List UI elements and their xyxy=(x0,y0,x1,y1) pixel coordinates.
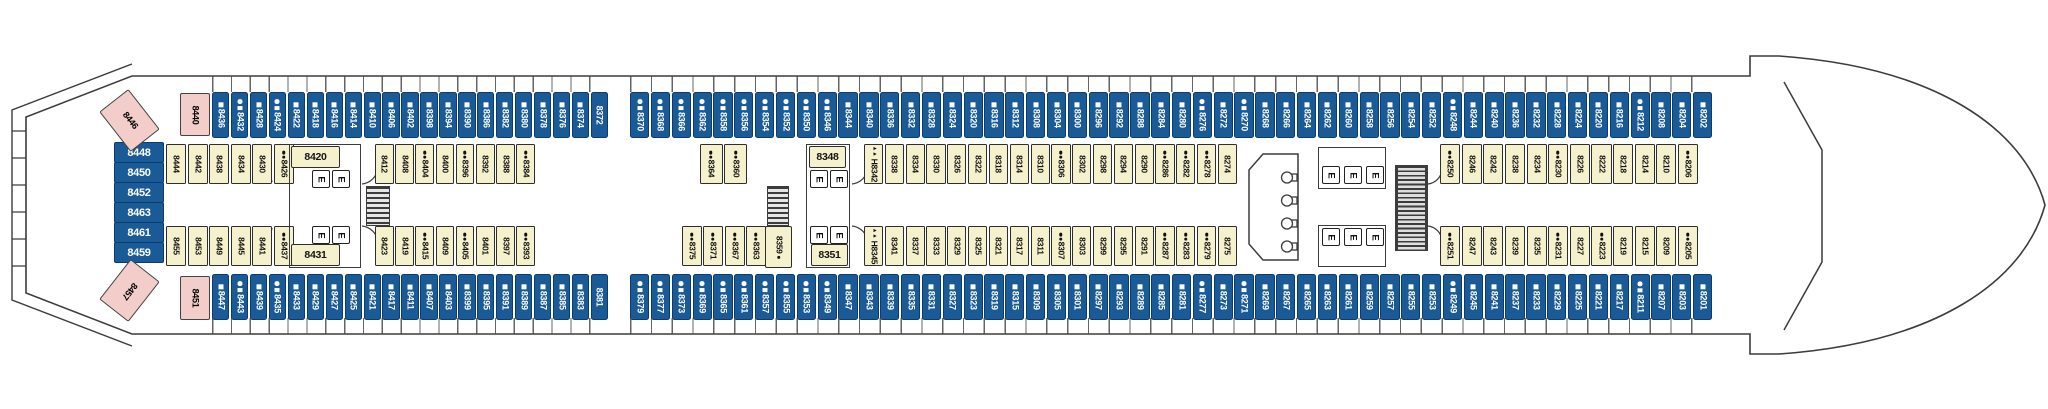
sofa-bed-icon xyxy=(1221,102,1226,107)
cabin-8233: 8233 xyxy=(1526,274,1545,320)
sofa-bed-icon xyxy=(1054,284,1059,289)
cabin-8260: 8260 xyxy=(1339,92,1358,138)
cabin-number: 8214 xyxy=(1641,155,1650,173)
sofa-bed-icon xyxy=(1158,102,1163,107)
cabin-8281: 8281 xyxy=(1172,274,1191,320)
cabin-number: 8389 xyxy=(519,284,528,309)
sofa-bed-icon xyxy=(256,284,261,289)
accessible-triangles-icon: ▲▲ xyxy=(871,146,877,157)
cabin-8317: 8317 xyxy=(1010,226,1029,266)
cabin-8296: 8296 xyxy=(1089,92,1108,138)
cabin-8402: 8402 xyxy=(401,92,418,138)
sofa-bed-icon xyxy=(1284,102,1289,107)
sofa-bed-icon xyxy=(700,288,705,293)
sofa-bed-icon xyxy=(465,284,470,289)
balcony-divider-strip-0 xyxy=(212,76,608,92)
upper-berth-dot-icon xyxy=(1205,233,1209,237)
cabin-number: 8303 xyxy=(1077,237,1086,255)
sofa-bed-icon xyxy=(465,102,470,107)
cabin-number: 8355 xyxy=(781,281,790,313)
cabin-number: 8367 xyxy=(730,233,739,260)
upper-berth-dot-icon xyxy=(690,237,694,241)
cabin-8315: 8315 xyxy=(1005,274,1024,320)
cabin-8278: 8278 xyxy=(1197,144,1216,184)
cabin-8428: 8428 xyxy=(250,92,267,138)
cabin-8438: 8438 xyxy=(209,144,229,184)
cabin-8319: 8319 xyxy=(984,274,1003,320)
cabin-8201: 8201 xyxy=(1693,274,1712,320)
cabin-number: 8237 xyxy=(1511,284,1520,309)
berth-dot-icon xyxy=(1638,281,1643,286)
upper-berth-dot-icon xyxy=(710,151,714,155)
upper-berth-dot-icon xyxy=(1556,155,1560,159)
cabin-number: 8282 xyxy=(1182,151,1191,178)
cabin-number: 8374 xyxy=(576,102,585,127)
cabin-8251: 8251 xyxy=(1440,226,1460,266)
cabin-8291: 8291 xyxy=(1135,226,1154,266)
cabin-number: 8434 xyxy=(237,155,246,173)
upper-berth-dot-icon xyxy=(524,233,528,237)
cabin-number: 8294 xyxy=(1119,155,1128,173)
cabin-8326: 8326 xyxy=(947,144,966,184)
cabin-number: 8255 xyxy=(1406,284,1415,309)
cabin-number: 8249 xyxy=(1448,281,1457,313)
cabin-number: 8310 xyxy=(1036,155,1045,173)
balcony-divider-strip-3 xyxy=(630,318,1712,334)
sofa-bed-icon xyxy=(1700,102,1705,107)
cabin-number: 8297 xyxy=(1094,284,1103,309)
cabin-8304: 8304 xyxy=(1047,92,1066,138)
upper-berth-dot-icon xyxy=(1556,237,1560,241)
sofa-bed-icon xyxy=(294,284,299,289)
cabin-number: 8290 xyxy=(1140,155,1149,173)
sofa-bed-icon xyxy=(313,102,318,107)
cabin-number: 8272 xyxy=(1219,102,1228,127)
berth-dot-icon xyxy=(700,281,705,286)
cabin-8425: 8425 xyxy=(345,274,362,320)
cabin-number: 8360 xyxy=(731,151,740,178)
cabin-number: 8218 xyxy=(1619,155,1628,173)
cabin-number: 8438 xyxy=(215,155,224,173)
cabin-number: 8337 xyxy=(911,237,920,255)
cabin-8295: 8295 xyxy=(1114,226,1133,266)
cabin-number: 8382 xyxy=(500,102,509,127)
cabin-8225: 8225 xyxy=(1568,274,1587,320)
cabin-number: 8271 xyxy=(1240,281,1249,313)
sofa-bed-icon xyxy=(1700,284,1705,289)
cabin-number: 8288 xyxy=(1135,102,1144,127)
cabin-number: 8234 xyxy=(1532,155,1541,173)
sofa-bed-icon xyxy=(804,106,809,111)
sofa-bed-icon xyxy=(1346,284,1351,289)
cabin-number: 8344 xyxy=(844,102,853,127)
cabin-number: 8293 xyxy=(1115,284,1124,309)
cabin-8292: 8292 xyxy=(1109,92,1128,138)
cabin-8443: 8443 xyxy=(231,274,248,320)
cabin-8347: 8347 xyxy=(838,274,857,320)
cabin-number: 8436 xyxy=(216,102,225,127)
cabin-8360: 8360 xyxy=(724,144,747,184)
cabin-8434: 8434 xyxy=(231,144,251,184)
cabin-number: 8225 xyxy=(1573,284,1582,309)
cabin-number: 8375 xyxy=(688,233,697,260)
sofa-bed-icon xyxy=(1575,284,1580,289)
cabin-number: 8346 xyxy=(823,99,832,131)
cabin-number: 8399 xyxy=(462,284,471,309)
cabin-8221: 8221 xyxy=(1589,274,1608,320)
cabin-8272: 8272 xyxy=(1214,92,1233,138)
cabin-number: 8306 xyxy=(1057,151,1066,178)
cabin-8303: 8303 xyxy=(1072,226,1091,266)
cabin-8277: 8277 xyxy=(1193,274,1212,320)
cabin-8209: 8209 xyxy=(1656,226,1676,266)
cabin-8445: 8445 xyxy=(231,226,251,266)
cabin-8377: 8377 xyxy=(651,274,670,320)
cabin-8249: 8249 xyxy=(1443,274,1462,320)
cabin-8235: 8235 xyxy=(1527,226,1547,266)
sofa-bed-icon xyxy=(679,288,684,293)
sofa-bed-icon xyxy=(658,106,663,111)
sofa-bed-icon xyxy=(1033,102,1038,107)
sofa-bed-icon xyxy=(484,102,489,107)
cabin-8455: 8455 xyxy=(166,226,186,266)
cabin-8254: 8254 xyxy=(1401,92,1420,138)
upper-berth-dot-icon xyxy=(1059,155,1063,159)
cabin-number: 8383 xyxy=(576,284,585,309)
sofa-bed-icon xyxy=(1013,102,1018,107)
cabin-number: 8248 xyxy=(1448,99,1457,131)
sofa-bed-icon xyxy=(1680,102,1685,107)
cabin-8259: 8259 xyxy=(1360,274,1379,320)
sofa-bed-icon xyxy=(332,284,337,289)
cabin-8286: 8286 xyxy=(1155,144,1174,184)
upper-berth-dot-icon xyxy=(423,237,427,241)
cabin-number: 8275 xyxy=(1223,237,1232,255)
cabin-number: 8366 xyxy=(677,99,686,131)
berth-dot-icon xyxy=(275,281,280,286)
berth-dot-icon xyxy=(237,281,242,286)
cabin-8202: 8202 xyxy=(1693,92,1712,138)
elevator-icon: E xyxy=(1366,166,1384,184)
cabin-8374: 8374 xyxy=(572,92,589,138)
cabin-8329: 8329 xyxy=(947,226,966,266)
cabin-8237: 8237 xyxy=(1505,274,1524,320)
sofa-bed-icon xyxy=(1450,106,1455,111)
balcony-divider-strip-2 xyxy=(212,318,608,334)
berth-dot-icon xyxy=(777,256,781,260)
cabin-number: 8457 xyxy=(120,280,139,300)
cabin-number: 8319 xyxy=(989,284,998,309)
core-wall-0 xyxy=(289,144,361,268)
sofa-bed-icon xyxy=(1638,106,1643,111)
sofa-bed-icon xyxy=(637,106,642,111)
cabin-8288: 8288 xyxy=(1130,92,1149,138)
cabin-8211: 8211 xyxy=(1631,274,1650,320)
cabin-number: 8227 xyxy=(1576,237,1585,255)
cabin-number: 8429 xyxy=(311,284,320,309)
cabin-8239: 8239 xyxy=(1505,226,1525,266)
cabin-8403: 8403 xyxy=(439,274,456,320)
cabin-group-top-yellow-5: 8250824682428238823482308226822282188214… xyxy=(1440,144,1698,184)
sofa-bed-icon xyxy=(1492,284,1497,289)
cabin-8382: 8382 xyxy=(496,92,513,138)
cabin-number: 8403 xyxy=(443,284,452,309)
cabin-8216: 8216 xyxy=(1610,92,1629,138)
sofa-bed-icon xyxy=(721,288,726,293)
sofa-bed-icon xyxy=(1179,102,1184,107)
cabin-number: 8386 xyxy=(481,102,490,127)
cabin-8358: 8358 xyxy=(713,92,732,138)
sofa-bed-icon xyxy=(427,284,432,289)
sofa-bed-icon xyxy=(929,284,934,289)
sofa-bed-icon xyxy=(1450,288,1455,293)
cabin-number: 8343 xyxy=(864,284,873,309)
sofa-bed-icon xyxy=(1200,288,1205,293)
cabin-number: 8246 xyxy=(1467,155,1476,173)
berth-dot-icon xyxy=(783,99,788,104)
cabin-8340: 8340 xyxy=(859,92,878,138)
upper-berth-dot-icon xyxy=(1163,237,1167,241)
cabin-8218: 8218 xyxy=(1613,144,1633,184)
sofa-bed-icon xyxy=(521,284,526,289)
cabin-8422: 8422 xyxy=(288,92,305,138)
sofa-bed-icon xyxy=(1388,284,1393,289)
cabin-8410: 8410 xyxy=(364,92,381,138)
cabin-number: 8244 xyxy=(1469,102,1478,127)
sofa-bed-icon xyxy=(1200,106,1205,111)
cabin-number: 8347 xyxy=(844,284,853,309)
cabin-group-top-yellow-4: ▲▲H8342833883348330832683228318831483108… xyxy=(864,144,1237,184)
cabin-8349: 8349 xyxy=(818,274,837,320)
cabin-group-bottom-yellow-1: 845584538449844584418437 xyxy=(166,226,294,266)
cabin-8294: 8294 xyxy=(1114,144,1133,184)
cabin-number: ▲▲H8345 xyxy=(869,228,878,264)
sofa-bed-icon xyxy=(351,102,356,107)
sofa-bed-icon xyxy=(908,284,913,289)
cabin-number: 8414 xyxy=(349,102,358,127)
cabin-number: 8269 xyxy=(1260,284,1269,309)
cabin-number: 8267 xyxy=(1281,284,1290,309)
berth-dot-icon xyxy=(1242,281,1247,286)
sofa-bed-icon xyxy=(1617,102,1622,107)
cabin-8366: 8366 xyxy=(672,92,691,138)
cabin-8275: 8275 xyxy=(1218,226,1237,266)
cabin-8359: 8359 xyxy=(765,226,792,268)
sofa-bed-icon xyxy=(1284,284,1289,289)
berth-dot-icon xyxy=(237,99,242,104)
cabin-number: 8201 xyxy=(1698,284,1707,309)
elevator-icon: E xyxy=(312,226,330,244)
cabin-number: 8437 xyxy=(280,233,289,260)
cabin-8320: 8320 xyxy=(964,92,983,138)
cabin-number: 8400 xyxy=(441,155,450,173)
cabin-number: 8250 xyxy=(1446,151,1455,178)
cabin-8305: 8305 xyxy=(1047,274,1066,320)
sofa-bed-icon xyxy=(1575,102,1580,107)
cabin-number: 8365 xyxy=(719,281,728,313)
sofa-bed-icon xyxy=(825,288,830,293)
cabin-number: 8302 xyxy=(1077,155,1086,173)
cabin-number: 8330 xyxy=(932,155,941,173)
sofa-bed-icon xyxy=(1367,284,1372,289)
sofa-bed-icon xyxy=(762,288,767,293)
cabin-8396: 8396 xyxy=(456,144,475,184)
upper-berth-dot-icon xyxy=(282,155,286,159)
cabin-8372: 8372 xyxy=(591,92,608,138)
cabin-number: 8341 xyxy=(890,237,899,255)
cabin-8387: 8387 xyxy=(534,274,551,320)
sofa-bed-icon xyxy=(1659,284,1664,289)
cabin-number: 8408 xyxy=(400,155,409,173)
cabin-number: 8418 xyxy=(311,102,320,127)
berth-dot-icon xyxy=(762,281,767,286)
cabin-8214: 8214 xyxy=(1635,144,1655,184)
berth-dot-icon xyxy=(762,99,767,104)
cabin-number: 8295 xyxy=(1119,237,1128,255)
cabin-number: 8285 xyxy=(1156,284,1165,309)
sofa-bed-icon xyxy=(1242,288,1247,293)
sofa-bed-icon xyxy=(578,284,583,289)
cabin-8265: 8265 xyxy=(1297,274,1316,320)
cabin-8219: 8219 xyxy=(1613,226,1633,266)
cabin-number: 8312 xyxy=(1010,102,1019,127)
sofa-bed-icon xyxy=(1263,102,1268,107)
cabin-number: 8215 xyxy=(1641,237,1650,255)
sofa-bed-icon xyxy=(1471,102,1476,107)
balcony-divider-strip-1 xyxy=(630,76,1712,92)
sofa-bed-icon xyxy=(1221,284,1226,289)
cabin-number: 8224 xyxy=(1573,102,1582,127)
cabin-8282: 8282 xyxy=(1176,144,1195,184)
sofa-bed-icon xyxy=(700,106,705,111)
cabin-group-bottom-yellow-4: ▲▲H8345834183378333832983258321831783118… xyxy=(864,226,1237,266)
cabin-number: 8423 xyxy=(380,237,389,255)
cabin-number: 8279 xyxy=(1202,233,1211,260)
sofa-bed-icon xyxy=(1075,284,1080,289)
sofa-bed-icon xyxy=(888,284,893,289)
cabin-8210: 8210 xyxy=(1656,144,1676,184)
cabin-number: 8334 xyxy=(911,155,920,173)
cabin-8436: 8436 xyxy=(212,92,229,138)
upper-berth-dot-icon xyxy=(734,151,738,155)
sofa-bed-icon xyxy=(408,285,413,290)
cabin-number: 8254 xyxy=(1406,102,1415,127)
cabin-8205: 8205 xyxy=(1678,226,1698,266)
cabin-8409: 8409 xyxy=(436,226,455,266)
cabin-number: 8206 xyxy=(1684,151,1693,178)
cabin-8435: 8435 xyxy=(269,274,286,320)
upper-berth-dot-icon xyxy=(1205,237,1209,241)
cabin-8356: 8356 xyxy=(734,92,753,138)
cabin-8280: 8280 xyxy=(1172,92,1191,138)
cabin-number: 8430 xyxy=(258,155,267,173)
cabin-number: 8315 xyxy=(1010,284,1019,309)
sofa-bed-icon xyxy=(1138,284,1143,289)
cabin-number: 8339 xyxy=(885,284,894,309)
sofa-bed-icon xyxy=(867,284,872,289)
cabin-number: 8261 xyxy=(1344,284,1353,309)
sofa-bed-icon xyxy=(1263,284,1268,289)
cabin-8341: 8341 xyxy=(885,226,904,266)
cabin-8321: 8321 xyxy=(989,226,1008,266)
sofa-bed-icon xyxy=(1325,102,1330,107)
cabin-8327: 8327 xyxy=(943,274,962,320)
sofa-bed-icon xyxy=(1304,284,1309,289)
cabin-number: 8419 xyxy=(400,237,409,255)
cabin-number: 8391 xyxy=(500,284,509,309)
cabin-8308: 8308 xyxy=(1026,92,1045,138)
upper-berth-dot-icon xyxy=(463,237,467,241)
upper-berth-dot-icon xyxy=(1448,233,1452,237)
sofa-bed-icon xyxy=(971,102,976,107)
elevator-icon: E xyxy=(332,226,350,244)
cabin-8248: 8248 xyxy=(1443,92,1462,138)
cabin-8222: 8222 xyxy=(1591,144,1611,184)
cabin-8331: 8331 xyxy=(922,274,941,320)
cabin-8270: 8270 xyxy=(1234,92,1253,138)
sofa-bed-icon xyxy=(1242,106,1247,111)
cabin-number: 8231 xyxy=(1554,233,1563,260)
cabin-number: 8221 xyxy=(1594,284,1603,309)
berth-dot-icon xyxy=(679,99,684,104)
cabin-number: 8362 xyxy=(698,99,707,131)
cabin-8408: 8408 xyxy=(395,144,414,184)
cabin-number: 8292 xyxy=(1115,102,1124,127)
cabin-number: 8444 xyxy=(172,155,181,173)
cabin-number: 8265 xyxy=(1302,284,1311,309)
cabin-8328: 8328 xyxy=(922,92,941,138)
sofa-bed-icon xyxy=(1534,284,1539,289)
cabin-number: 8318 xyxy=(994,155,1003,173)
cabin-group-bottom-blue-fwd: 8379837783738369836583618357835583538349… xyxy=(630,274,1712,320)
cabin-number: 8410 xyxy=(368,102,377,127)
cabin-8419: 8419 xyxy=(395,226,414,266)
elevator-icon: E xyxy=(810,170,828,188)
cabin-number: 8402 xyxy=(406,102,415,127)
cabin-number: 8245 xyxy=(1469,284,1478,309)
cabin-8258: 8258 xyxy=(1360,92,1379,138)
cabin-number: 8322 xyxy=(973,155,982,173)
cabin-number: 8216 xyxy=(1615,102,1624,127)
cabin-8391: 8391 xyxy=(496,274,513,320)
cabin-group-bottom-yellow-3: 8375837183678363 xyxy=(682,226,766,266)
upper-berth-dot-icon xyxy=(282,151,286,155)
deck-plan: 8436843284288424842284188416841484108406… xyxy=(0,0,2048,409)
cabin-8381: 8381 xyxy=(591,274,608,320)
cabin-number: 8412 xyxy=(380,155,389,173)
cabin-number: 8211 xyxy=(1636,281,1645,312)
cabin-8383: 8383 xyxy=(572,274,589,320)
cabin-number: 8353 xyxy=(802,281,811,313)
sofa-bed-icon xyxy=(218,102,223,107)
sofa-bed-icon xyxy=(1409,284,1414,289)
upper-berth-dot-icon xyxy=(1448,151,1452,155)
cabin-number: 8278 xyxy=(1202,151,1211,178)
upper-berth-dot-icon xyxy=(1163,233,1167,237)
cabin-number: 8247 xyxy=(1467,237,1476,255)
cabin-number: 8276 xyxy=(1198,99,1207,131)
cabin-number: 8376 xyxy=(557,102,566,127)
cabin-8447: 8447 xyxy=(212,274,229,320)
cabin-number: 8445 xyxy=(237,237,246,255)
cabin-8416: 8416 xyxy=(326,92,343,138)
cabin-number: 8301 xyxy=(1073,284,1082,309)
berth-dot-icon xyxy=(825,99,830,104)
cabin-number: 8242 xyxy=(1489,155,1498,173)
cabin-8440: 8440 xyxy=(180,93,210,136)
cabin-group-top-blue-aft: 8436843284288424842284188416841484108406… xyxy=(212,92,608,138)
cabin-8394: 8394 xyxy=(439,92,456,138)
